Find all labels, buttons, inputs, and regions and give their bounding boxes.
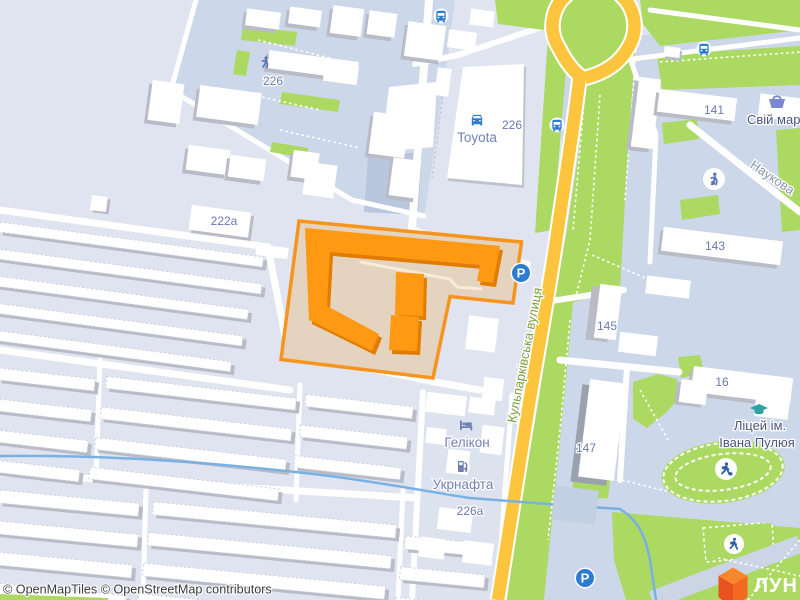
svg-text:Ліцей ім.: Ліцей ім. [734,418,786,433]
svg-text:Toyota: Toyota [457,130,497,145]
svg-text:ЛУН: ЛУН [754,575,798,597]
svg-text:P: P [517,266,526,281]
svg-text:147: 147 [576,441,596,455]
svg-text:143: 143 [705,239,725,253]
svg-text:P: P [581,571,590,586]
svg-text:Гелікон: Гелікон [444,435,489,450]
svg-text:222а: 222а [211,214,238,228]
svg-text:Івана Пулюя: Івана Пулюя [719,435,795,450]
svg-text:Укрнафта: Укрнафта [433,477,494,492]
svg-text:226а: 226а [457,504,484,518]
svg-text:226: 226 [263,74,283,88]
svg-text:Свій маркет: Свій маркет [747,112,800,127]
svg-text:226: 226 [502,118,522,132]
svg-text:145: 145 [597,319,617,333]
svg-text:141: 141 [704,103,724,117]
svg-text:© OpenMapTiles © OpenStreetMap: © OpenMapTiles © OpenStreetMap contribut… [3,583,272,597]
svg-text:16: 16 [715,375,729,389]
